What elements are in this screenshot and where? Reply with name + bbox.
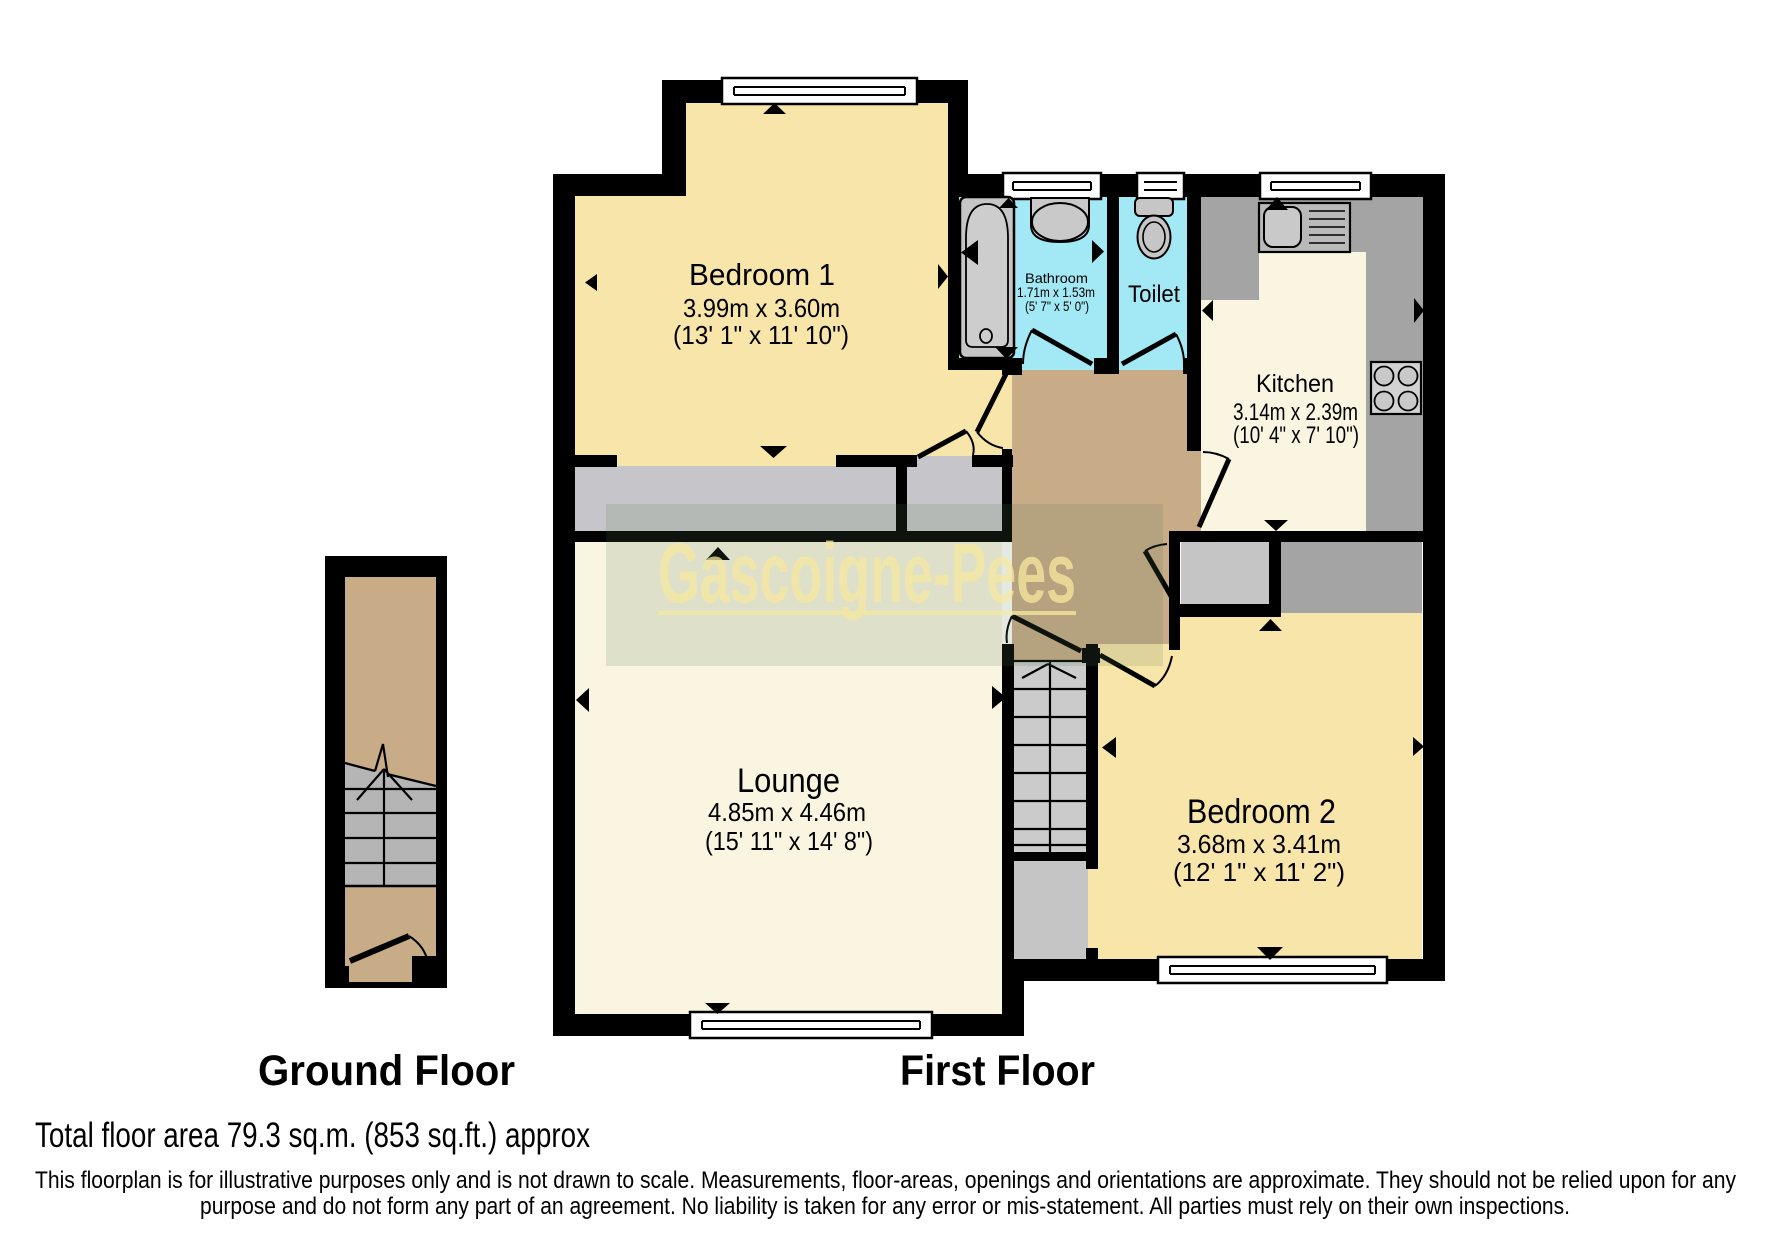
svg-text:Bedroom 2: Bedroom 2 [1187, 793, 1336, 831]
svg-text:(5' 7" x 5' 0"): (5' 7" x 5' 0") [1025, 298, 1089, 314]
svg-text:(15' 11" x 14' 8"): (15' 11" x 14' 8") [705, 826, 873, 856]
svg-text:First Floor: First Floor [900, 1047, 1095, 1095]
svg-text:Ground Floor: Ground Floor [258, 1047, 515, 1095]
svg-text:(12' 1" x 11' 2"): (12' 1" x 11' 2") [1173, 857, 1345, 887]
svg-text:Kitchen: Kitchen [1256, 370, 1334, 398]
svg-text:Bedroom 1: Bedroom 1 [689, 257, 835, 292]
svg-text:(10' 4" x 7' 10"): (10' 4" x 7' 10") [1233, 422, 1359, 449]
svg-text:Total floor area 79.3 sq.m. (8: Total floor area 79.3 sq.m. (853 sq.ft.)… [35, 1116, 590, 1155]
svg-text:3.99m x 3.60m: 3.99m x 3.60m [683, 293, 840, 323]
svg-text:Gascoigne-Pees: Gascoigne-Pees [658, 526, 1076, 620]
svg-text:purpose and do not form any pa: purpose and do not form any part of an a… [200, 1193, 1570, 1220]
svg-text:This floorplan is for illustra: This floorplan is for illustrative purpo… [35, 1167, 1736, 1194]
svg-text:Lounge: Lounge [737, 762, 840, 800]
svg-text:3.68m x 3.41m: 3.68m x 3.41m [1177, 829, 1341, 859]
svg-text:(13' 1" x 11' 10"): (13' 1" x 11' 10") [673, 320, 849, 350]
svg-text:Toilet: Toilet [1128, 281, 1180, 308]
svg-text:4.85m x 4.46m: 4.85m x 4.46m [708, 797, 866, 827]
